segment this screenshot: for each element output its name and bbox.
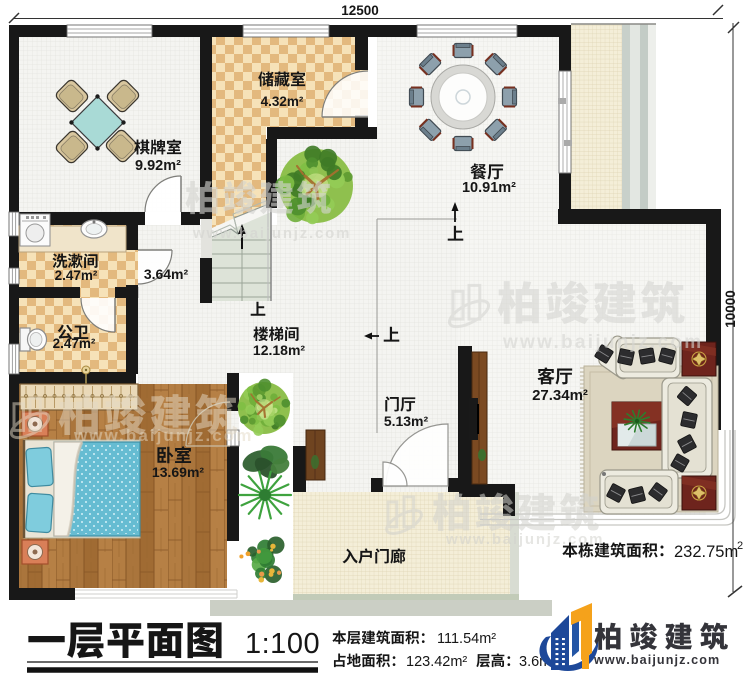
svg-text:10.91m²: 10.91m² xyxy=(462,180,516,196)
svg-text:232.75m: 232.75m xyxy=(674,543,738,561)
svg-text:4.32m²: 4.32m² xyxy=(261,94,304,109)
svg-text:27.34m²: 27.34m² xyxy=(532,387,588,404)
svg-text:www.baijunjz.com: www.baijunjz.com xyxy=(445,531,604,548)
svg-text:3.64m²: 3.64m² xyxy=(144,266,189,282)
svg-text:www.baijunjz.com: www.baijunjz.com xyxy=(192,225,351,242)
svg-text:www.baijunjz.com: www.baijunjz.com xyxy=(502,332,703,353)
svg-text:2.47m²: 2.47m² xyxy=(53,336,96,351)
svg-text:111.54m²: 111.54m² xyxy=(437,631,496,647)
svg-text:www.baijunjz.com: www.baijunjz.com xyxy=(593,653,720,667)
svg-text:12.18m²: 12.18m² xyxy=(253,342,305,358)
svg-text:12500: 12500 xyxy=(341,3,379,18)
svg-text:2: 2 xyxy=(737,540,743,552)
svg-text:2.47m²: 2.47m² xyxy=(55,268,98,283)
svg-text:www.baijunjz.com: www.baijunjz.com xyxy=(73,426,253,445)
svg-text:10000: 10000 xyxy=(723,290,738,328)
svg-text:13.69m²: 13.69m² xyxy=(152,464,204,480)
svg-text:123.42m²: 123.42m² xyxy=(406,654,467,670)
svg-text:9.92m²: 9.92m² xyxy=(135,158,181,174)
svg-text:1:100: 1:100 xyxy=(245,628,320,660)
svg-text:5.13m²: 5.13m² xyxy=(384,413,429,429)
